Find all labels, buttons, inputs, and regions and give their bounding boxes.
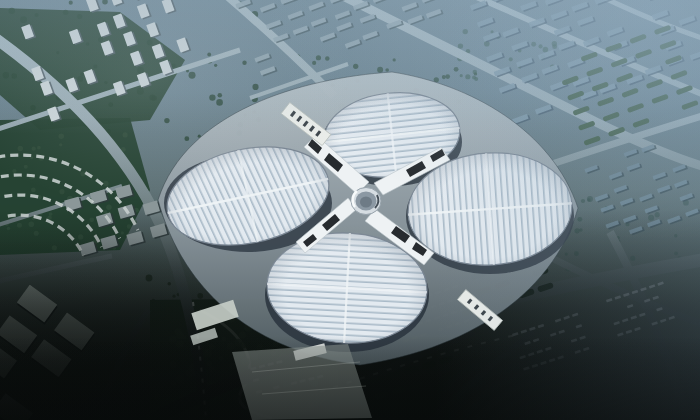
- rendering-canvas: [0, 0, 700, 420]
- aerial-rendering: [0, 0, 700, 420]
- bottom-soft-shadow: [0, 0, 700, 420]
